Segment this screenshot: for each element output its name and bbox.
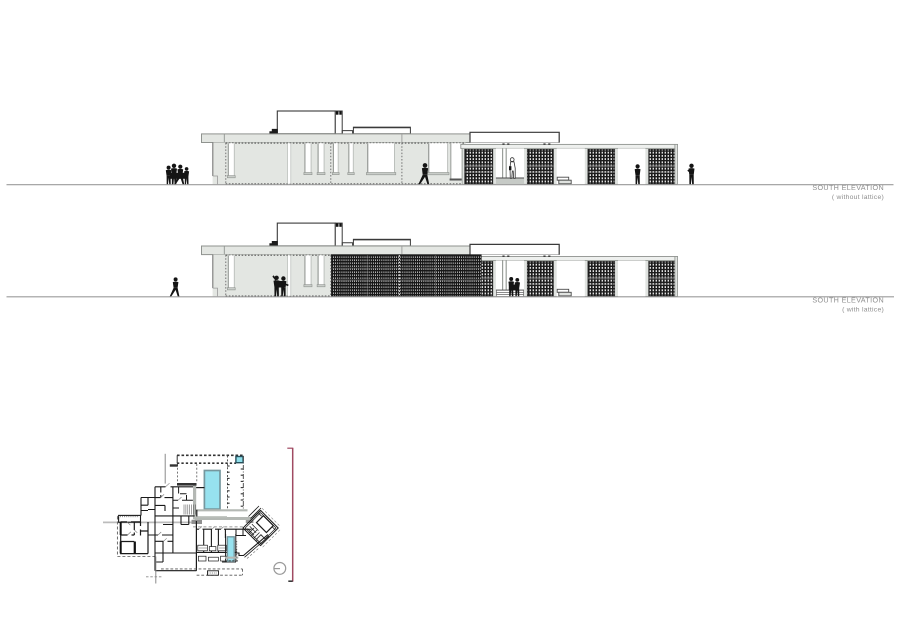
svg-text:( with lattice): ( with lattice): [842, 306, 884, 313]
svg-text:SOUTH ELEVATION: SOUTH ELEVATION: [812, 295, 884, 304]
svg-text:( without lattice): ( without lattice): [832, 194, 884, 201]
svg-text:SOUTH ELEVATION: SOUTH ELEVATION: [812, 183, 884, 192]
